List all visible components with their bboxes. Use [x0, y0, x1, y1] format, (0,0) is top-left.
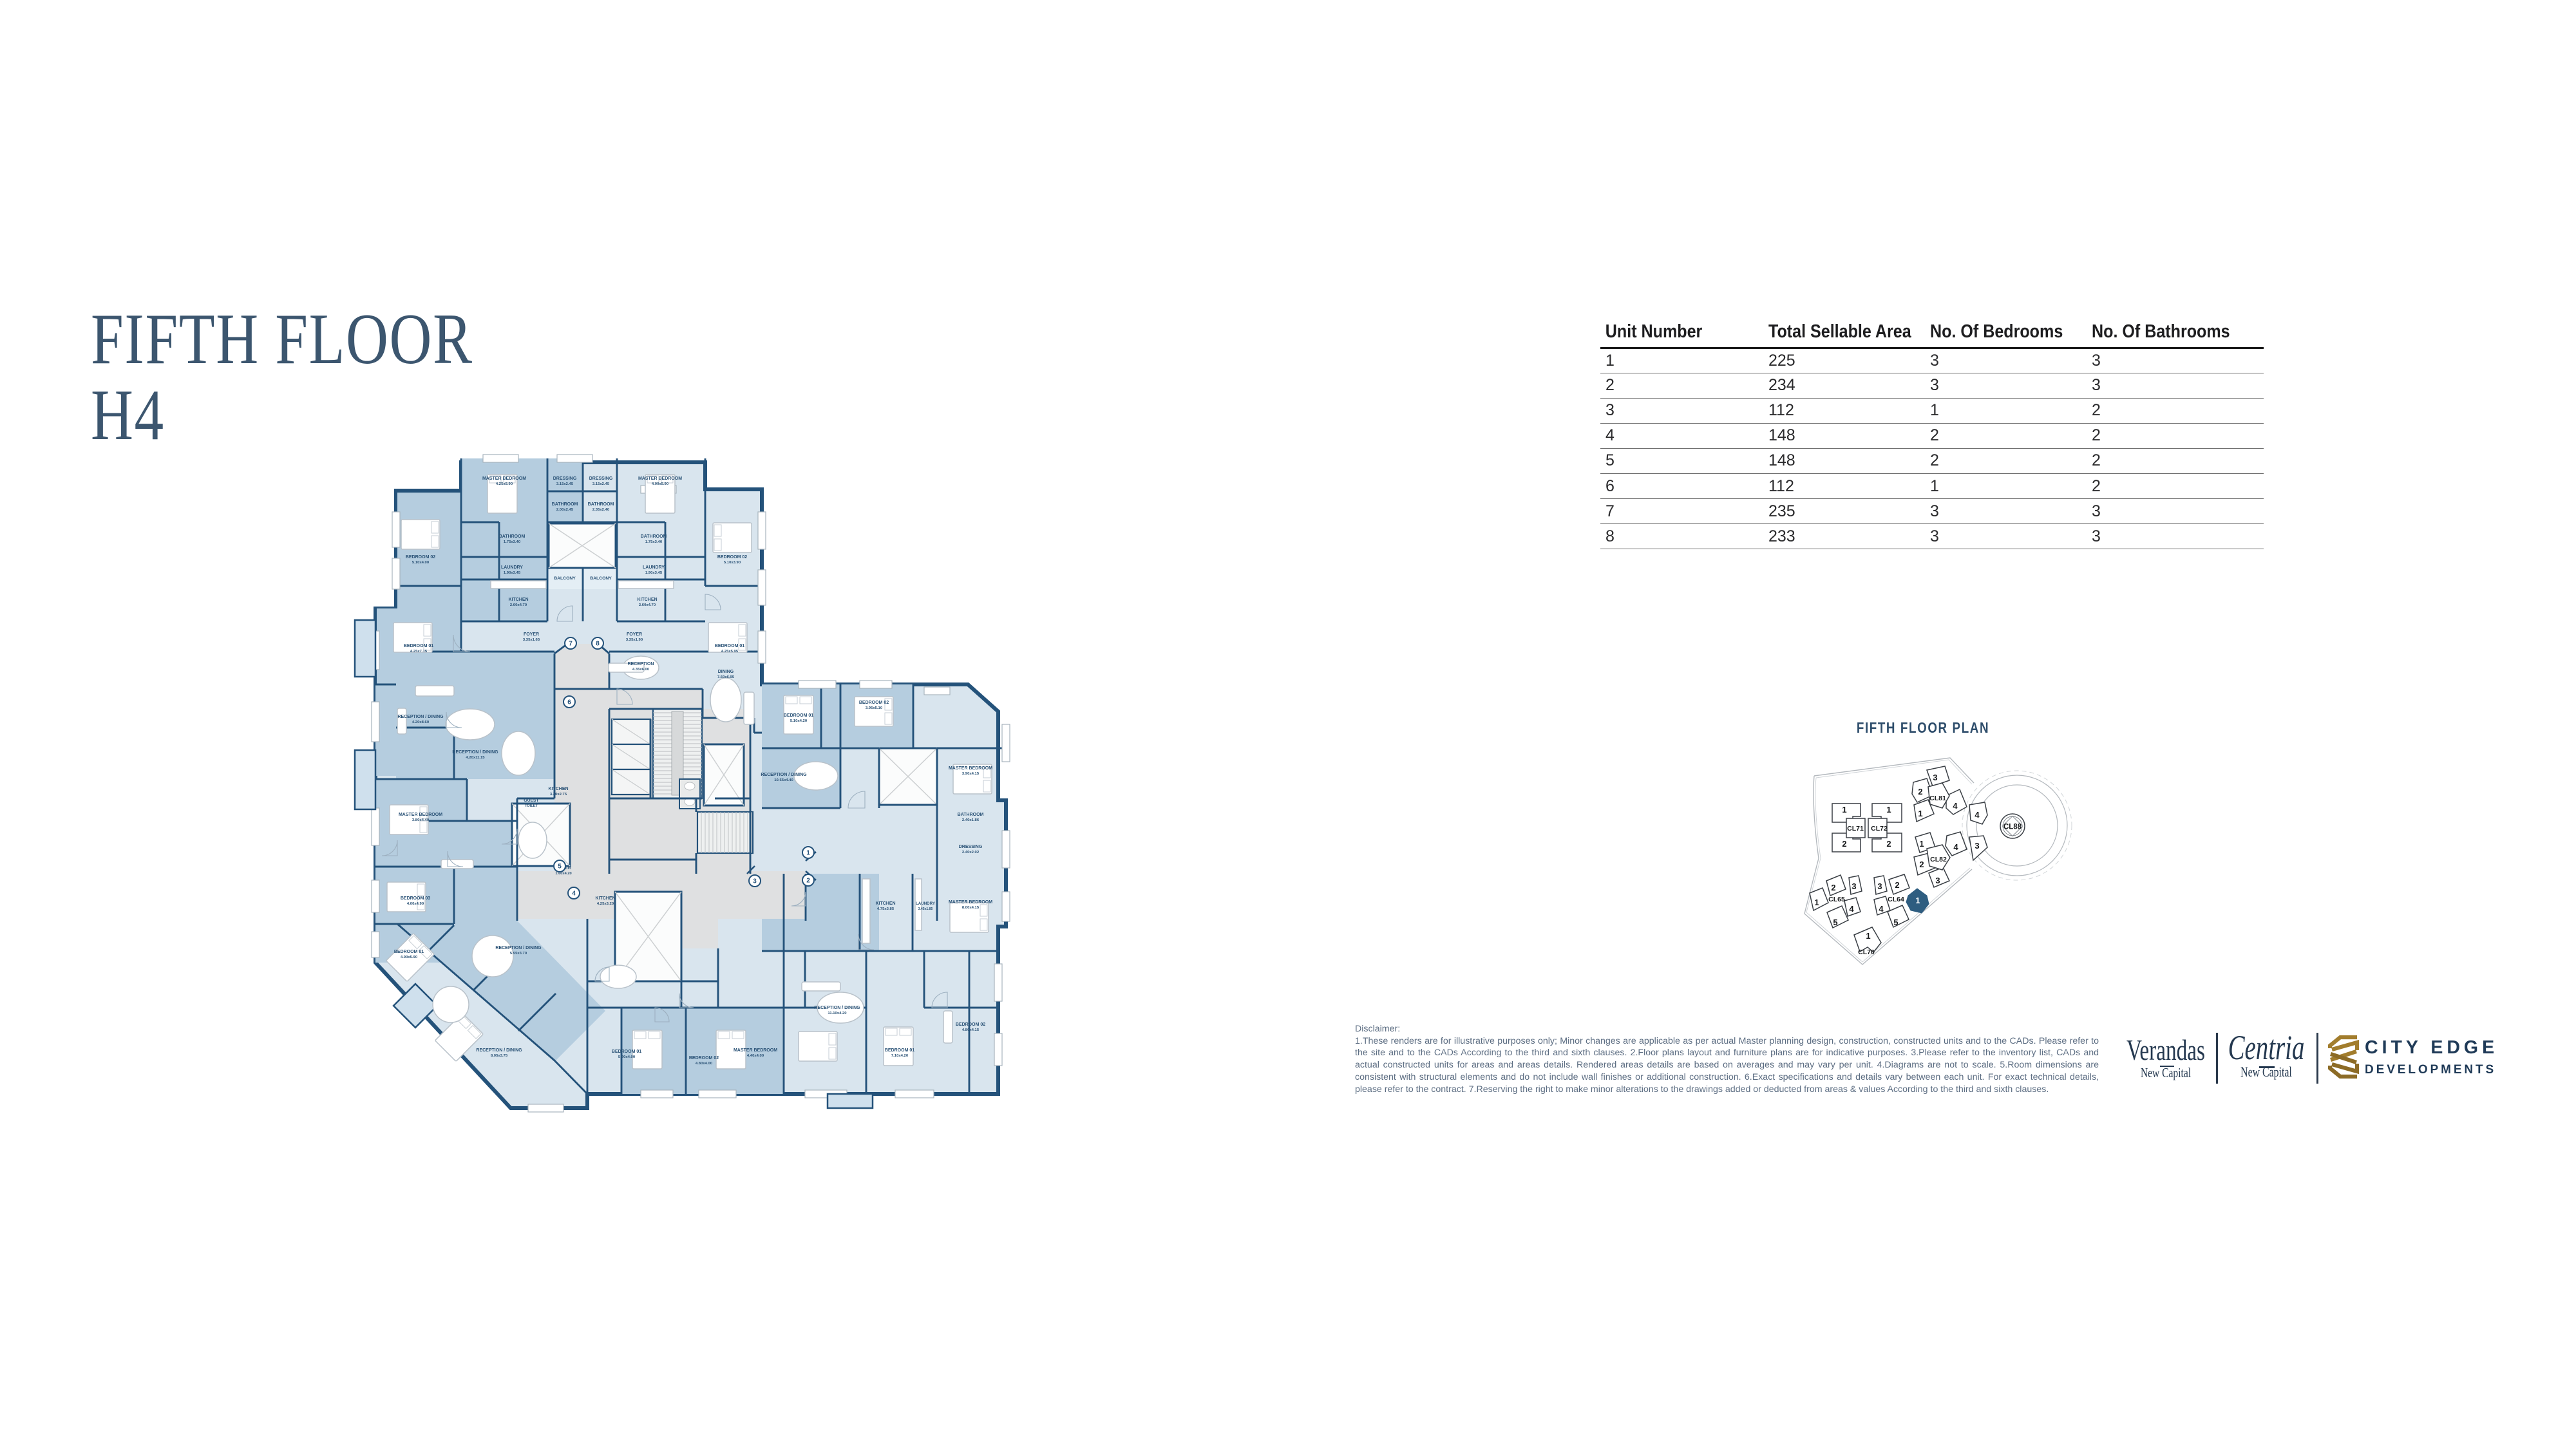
svg-text:RECEPTION / DINING: RECEPTION / DINING — [814, 1006, 860, 1010]
svg-text:3.15x2.45: 3.15x2.45 — [592, 482, 610, 486]
svg-text:4.20x11.15: 4.20x11.15 — [466, 756, 485, 760]
svg-text:1: 1 — [1916, 896, 1920, 905]
svg-text:2: 2 — [1886, 839, 1891, 849]
svg-text:1.75x3.40: 1.75x3.40 — [645, 540, 663, 544]
svg-text:BEDROOM 01: BEDROOM 01 — [394, 950, 424, 954]
svg-text:LAUNDRY: LAUNDRY — [643, 565, 665, 570]
svg-text:4: 4 — [1879, 904, 1884, 914]
svg-text:2: 2 — [1895, 880, 1899, 890]
svg-text:1.75x3.40: 1.75x3.40 — [504, 540, 521, 544]
svg-text:FOYER: FOYER — [627, 632, 642, 637]
svg-text:RECEPTION / DINING: RECEPTION / DINING — [495, 946, 542, 950]
svg-text:BALCONY: BALCONY — [554, 576, 576, 581]
svg-text:5: 5 — [558, 863, 562, 871]
svg-text:CL82: CL82 — [1930, 856, 1947, 863]
svg-text:3.15x2.45: 3.15x2.45 — [556, 482, 574, 486]
svg-text:3: 3 — [1877, 881, 1882, 891]
svg-text:DRESSING: DRESSING — [959, 845, 983, 849]
svg-text:BEDROOM 01: BEDROOM 01 — [612, 1050, 641, 1054]
svg-text:2.40x2.02: 2.40x2.02 — [962, 851, 980, 854]
svg-text:KITCHEN: KITCHEN — [548, 787, 568, 791]
svg-text:3.90x4.15: 3.90x4.15 — [962, 772, 980, 776]
svg-text:3.35x1.65: 3.35x1.65 — [523, 638, 540, 642]
svg-text:3: 3 — [1975, 841, 1979, 851]
svg-text:3.45x1.85: 3.45x1.85 — [918, 907, 933, 911]
svg-text:BEDROOM 02: BEDROOM 02 — [859, 701, 889, 705]
svg-text:BATHROOM: BATHROOM — [588, 502, 614, 507]
svg-text:BALCONY: BALCONY — [590, 576, 612, 581]
svg-text:3.35x1.90: 3.35x1.90 — [626, 638, 643, 642]
svg-text:MASTER BEDROOM: MASTER BEDROOM — [949, 766, 992, 771]
svg-text:CL65: CL65 — [1828, 896, 1845, 903]
svg-text:5.10x4.20: 5.10x4.20 — [790, 719, 808, 723]
svg-text:1: 1 — [1842, 805, 1846, 814]
svg-text:KITCHEN: KITCHEN — [875, 901, 895, 906]
svg-text:CL88: CL88 — [2003, 824, 2022, 831]
svg-text:4.25x5.90: 4.25x5.90 — [496, 482, 513, 486]
svg-text:BEDROOM 01: BEDROOM 01 — [404, 644, 433, 648]
svg-text:8.00x4.15: 8.00x4.15 — [962, 906, 980, 910]
svg-text:BEDROOM 01: BEDROOM 01 — [715, 644, 744, 648]
svg-text:DINING: DINING — [718, 670, 734, 674]
svg-text:BATHROOM: BATHROOM — [958, 813, 984, 817]
svg-text:DRESSING: DRESSING — [553, 476, 577, 481]
svg-text:KITCHEN: KITCHEN — [508, 598, 528, 602]
svg-text:1: 1 — [1919, 839, 1924, 849]
svg-text:RECEPTION / DINING: RECEPTION / DINING — [761, 773, 807, 777]
svg-text:1: 1 — [1886, 805, 1891, 814]
svg-text:5.90x4.00: 5.90x4.00 — [618, 1055, 636, 1059]
svg-text:7.60x6.95: 7.60x6.95 — [717, 675, 735, 679]
svg-text:BEDROOM 02: BEDROOM 02 — [689, 1056, 719, 1060]
svg-text:5: 5 — [1893, 918, 1898, 927]
svg-text:2.00x2.45: 2.00x2.45 — [556, 508, 574, 512]
svg-text:3: 3 — [1933, 773, 1937, 782]
svg-text:KITCHEN: KITCHEN — [595, 896, 615, 901]
svg-text:BEDROOM 01: BEDROOM 01 — [784, 713, 813, 718]
svg-text:CL81: CL81 — [1929, 795, 1946, 802]
svg-text:7.10x4.20: 7.10x4.20 — [891, 1054, 909, 1058]
svg-text:4: 4 — [572, 890, 576, 898]
svg-text:4: 4 — [1953, 801, 1958, 811]
svg-text:8: 8 — [596, 641, 600, 648]
svg-text:4: 4 — [1849, 904, 1854, 914]
svg-text:4: 4 — [1975, 810, 1980, 820]
svg-text:1.90x3.45: 1.90x3.45 — [645, 571, 663, 575]
svg-text:TOILET: TOILET — [525, 804, 538, 808]
svg-text:RECEPTION / DINING: RECEPTION / DINING — [452, 750, 498, 755]
svg-text:2.60x4.70: 2.60x4.70 — [639, 603, 656, 607]
svg-text:3.20x2.75: 3.20x2.75 — [550, 793, 567, 796]
svg-text:3: 3 — [1935, 876, 1940, 885]
svg-text:4.20x8.60: 4.20x8.60 — [412, 720, 430, 724]
svg-text:4.25x5.95: 4.25x5.95 — [721, 650, 739, 654]
svg-text:6: 6 — [567, 699, 571, 706]
svg-text:3.80x4.40: 3.80x4.40 — [412, 818, 430, 822]
svg-text:BATHROOM: BATHROOM — [641, 534, 667, 539]
svg-text:BEDROOM 03: BEDROOM 03 — [401, 896, 430, 901]
svg-text:4.35x6.00: 4.35x6.00 — [632, 668, 650, 672]
svg-text:5.10x3.90: 5.10x3.90 — [724, 561, 741, 565]
svg-text:DRESSING: DRESSING — [589, 476, 613, 481]
svg-text:1: 1 — [806, 850, 810, 857]
svg-text:5.55x3.70: 5.55x3.70 — [510, 952, 527, 956]
svg-text:10.55x4.40: 10.55x4.40 — [774, 778, 793, 782]
svg-text:2.60x4.70: 2.60x4.70 — [510, 603, 527, 607]
svg-text:4.40x4.00: 4.40x4.00 — [747, 1054, 764, 1058]
svg-text:3: 3 — [753, 878, 757, 885]
svg-text:2.35x2.40: 2.35x2.40 — [592, 508, 610, 512]
svg-text:CL70: CL70 — [1858, 948, 1875, 956]
svg-text:LAUNDRY: LAUNDRY — [916, 901, 936, 906]
svg-text:4.80x4.00: 4.80x4.00 — [696, 1062, 713, 1066]
svg-text:LAUNDRY: LAUNDRY — [501, 565, 523, 570]
svg-text:KITCHEN: KITCHEN — [637, 598, 657, 602]
svg-text:FOYER: FOYER — [524, 632, 539, 637]
svg-text:BATHROOM: BATHROOM — [499, 534, 526, 539]
svg-text:1: 1 — [1866, 931, 1870, 941]
svg-text:2: 2 — [1831, 883, 1835, 892]
svg-text:2: 2 — [1842, 839, 1846, 849]
svg-text:MASTER BEDROOM: MASTER BEDROOM — [399, 813, 442, 817]
svg-text:BATHROOM: BATHROOM — [552, 502, 578, 507]
svg-text:4.90x5.90: 4.90x5.90 — [401, 956, 418, 959]
svg-text:GUEST: GUEST — [524, 798, 539, 803]
svg-text:BEDROOM 02: BEDROOM 02 — [406, 555, 435, 560]
svg-text:8.05x3.75: 8.05x3.75 — [491, 1054, 508, 1058]
svg-text:MASTER BEDROOM: MASTER BEDROOM — [734, 1048, 777, 1053]
svg-text:3: 3 — [1851, 881, 1856, 891]
svg-text:4.00x4.90: 4.00x4.90 — [407, 902, 424, 906]
svg-text:BEDROOM 02: BEDROOM 02 — [956, 1022, 985, 1027]
svg-text:BEDROOM 01: BEDROOM 01 — [885, 1048, 914, 1053]
svg-text:4: 4 — [1953, 842, 1958, 852]
svg-text:4.25x3.20: 4.25x3.20 — [597, 902, 614, 906]
svg-text:11.10x4.20: 11.10x4.20 — [828, 1012, 847, 1015]
svg-text:MASTER BEDROOM: MASTER BEDROOM — [949, 900, 992, 905]
svg-text:MASTER BEDROOM: MASTER BEDROOM — [638, 476, 682, 481]
svg-text:3.95x5.10: 3.95x5.10 — [866, 706, 883, 710]
svg-text:5.10x4.00: 5.10x4.00 — [412, 561, 430, 565]
svg-text:1.60x4.20: 1.60x4.20 — [555, 872, 571, 876]
svg-text:MASTER BEDROOM: MASTER BEDROOM — [482, 476, 526, 481]
svg-text:1: 1 — [1814, 898, 1819, 907]
svg-text:1: 1 — [1918, 809, 1922, 818]
svg-text:5: 5 — [1833, 918, 1837, 927]
svg-text:2: 2 — [806, 878, 810, 885]
svg-text:4.00x5.90: 4.00x5.90 — [652, 482, 669, 486]
svg-text:RECEPTION: RECEPTION — [628, 662, 654, 666]
svg-text:4.80x4.15: 4.80x4.15 — [962, 1028, 980, 1032]
svg-text:7: 7 — [569, 641, 573, 648]
svg-text:RECEPTION / DINING: RECEPTION / DINING — [397, 715, 444, 719]
svg-text:4.75x3.85: 4.75x3.85 — [877, 907, 895, 911]
svg-text:CL71: CL71 — [1847, 825, 1864, 833]
svg-text:BEDROOM 02: BEDROOM 02 — [717, 555, 747, 560]
svg-text:2.40x1.86: 2.40x1.86 — [962, 818, 980, 822]
svg-text:CL64: CL64 — [1888, 896, 1904, 903]
svg-text:CL72: CL72 — [1871, 825, 1888, 833]
svg-text:RECEPTION / DINING: RECEPTION / DINING — [476, 1048, 522, 1053]
svg-text:4.25x7.15: 4.25x7.15 — [410, 650, 428, 654]
svg-text:2: 2 — [1918, 787, 1922, 796]
svg-text:2: 2 — [1919, 860, 1924, 869]
svg-text:1.90x3.45: 1.90x3.45 — [504, 571, 521, 575]
